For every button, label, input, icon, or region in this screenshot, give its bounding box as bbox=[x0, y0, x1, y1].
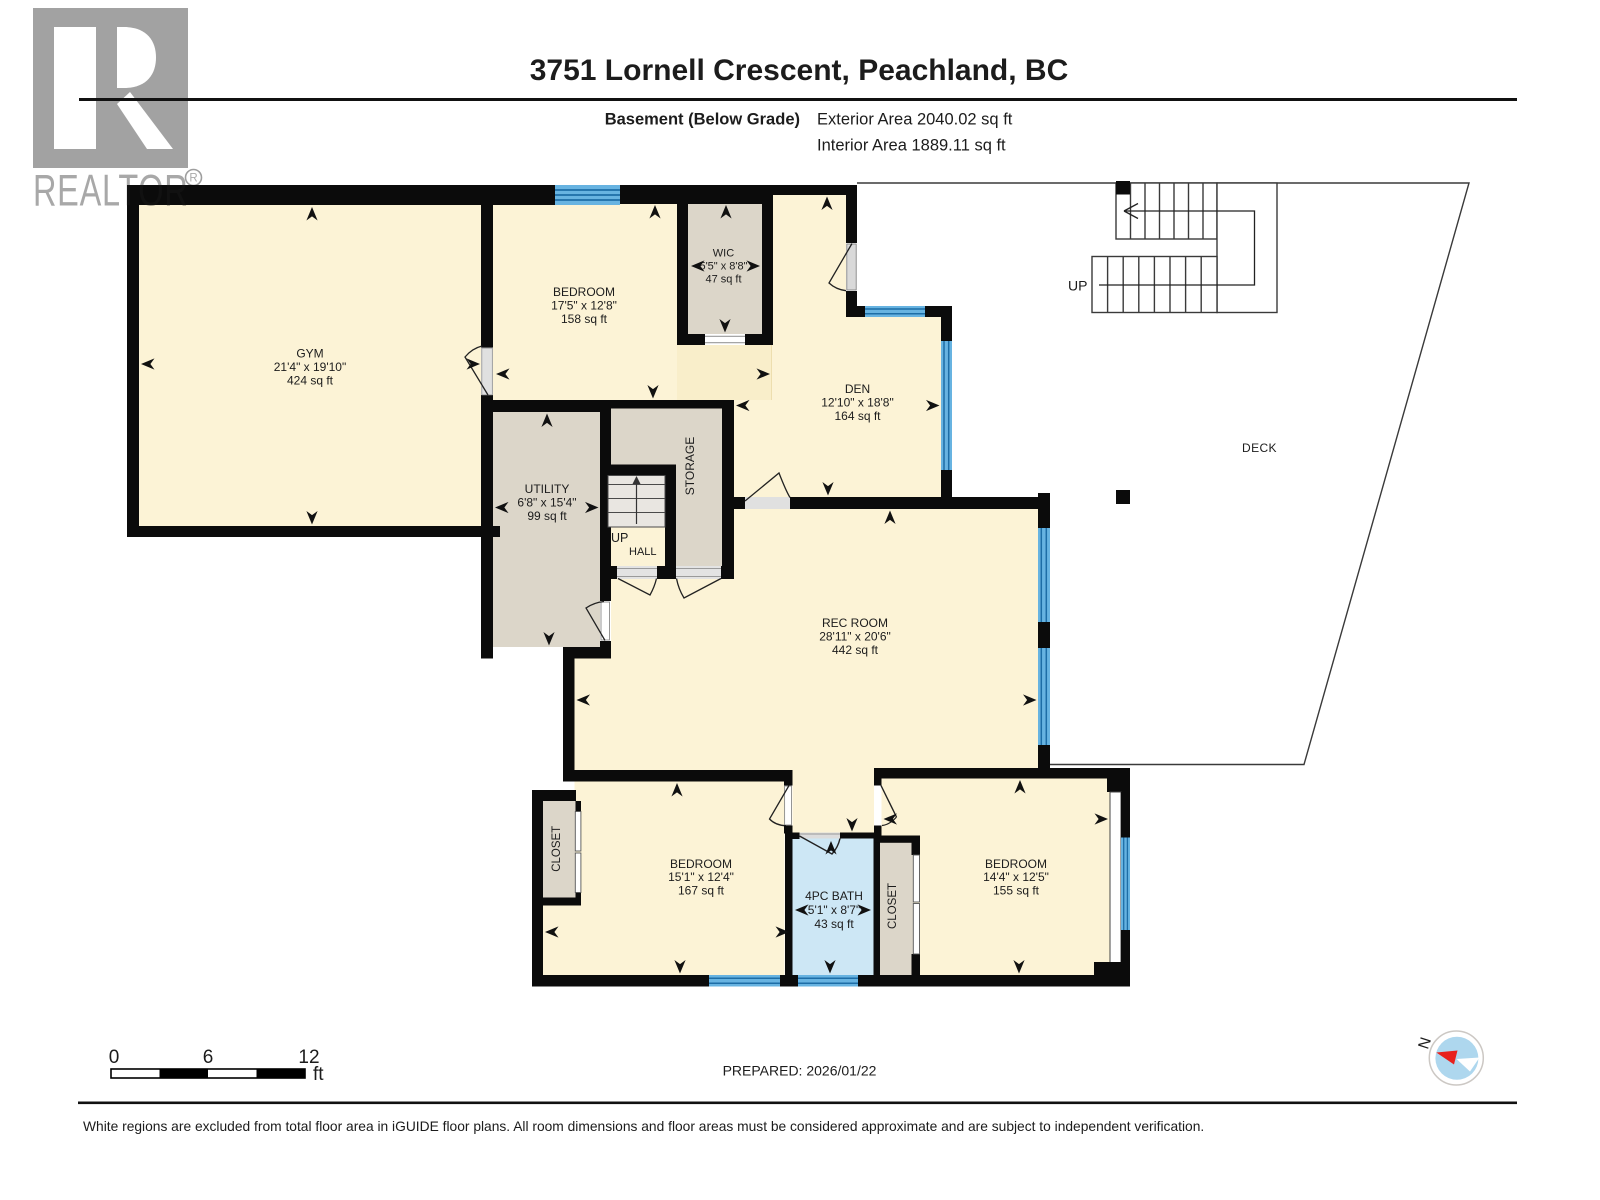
svg-text:CLOSET: CLOSET bbox=[551, 826, 563, 872]
svg-text:28'11" x 20'6": 28'11" x 20'6" bbox=[819, 629, 891, 643]
svg-text:99 sq ft: 99 sq ft bbox=[527, 509, 567, 523]
svg-text:43 sq ft: 43 sq ft bbox=[814, 917, 854, 931]
svg-text:15'1" x 12'4": 15'1" x 12'4" bbox=[668, 870, 734, 884]
svg-text:5'5" x 8'8": 5'5" x 8'8" bbox=[699, 261, 747, 273]
svg-text:REC ROOM: REC ROOM bbox=[822, 616, 888, 630]
svg-text:R: R bbox=[189, 173, 197, 185]
svg-text:17'5" x 12'8": 17'5" x 12'8" bbox=[551, 298, 617, 312]
svg-text:424 sq ft: 424 sq ft bbox=[287, 373, 334, 387]
svg-text:CLOSET: CLOSET bbox=[887, 883, 899, 929]
svg-text:HALL: HALL bbox=[629, 546, 657, 558]
svg-text:5'1" x 8'7": 5'1" x 8'7" bbox=[808, 903, 860, 917]
svg-text:UP: UP bbox=[1068, 278, 1087, 294]
svg-text:12'10" x 18'8": 12'10" x 18'8" bbox=[821, 395, 894, 409]
svg-text:Exterior Area 2040.02 sq ft: Exterior Area 2040.02 sq ft bbox=[817, 111, 1013, 129]
svg-text:0: 0 bbox=[109, 1047, 120, 1068]
svg-text:UP: UP bbox=[611, 531, 628, 545]
svg-text:158 sq ft: 158 sq ft bbox=[561, 312, 608, 326]
svg-text:442 sq ft: 442 sq ft bbox=[832, 643, 879, 657]
svg-text:ft: ft bbox=[313, 1064, 324, 1085]
svg-text:UTILITY: UTILITY bbox=[525, 482, 570, 496]
svg-text:164 sq ft: 164 sq ft bbox=[834, 409, 881, 423]
svg-text:14'4" x 12'5": 14'4" x 12'5" bbox=[983, 870, 1049, 884]
svg-text:WIC: WIC bbox=[713, 248, 734, 260]
svg-text:167 sq ft: 167 sq ft bbox=[678, 883, 725, 897]
svg-text:BEDROOM: BEDROOM bbox=[553, 285, 615, 299]
svg-text:21'4" x 19'10": 21'4" x 19'10" bbox=[274, 360, 347, 374]
svg-text:DEN: DEN bbox=[845, 382, 870, 396]
svg-text:3751 Lornell Crescent, Peachla: 3751 Lornell Crescent, Peachland, BC bbox=[530, 54, 1069, 87]
svg-text:Basement (Below Grade): Basement (Below Grade) bbox=[605, 111, 800, 129]
svg-text:REALTOR: REALTOR bbox=[33, 167, 188, 216]
svg-text:4PC BATH: 4PC BATH bbox=[805, 889, 863, 903]
svg-text:White regions are excluded fro: White regions are excluded from total fl… bbox=[83, 1119, 1204, 1134]
svg-text:6: 6 bbox=[203, 1047, 214, 1068]
svg-text:PREPARED: 2026/01/22: PREPARED: 2026/01/22 bbox=[723, 1063, 877, 1079]
svg-text:155 sq ft: 155 sq ft bbox=[993, 883, 1040, 897]
svg-text:Interior Area 1889.11 sq ft: Interior Area 1889.11 sq ft bbox=[817, 137, 1006, 155]
svg-text:6'8" x 15'4": 6'8" x 15'4" bbox=[517, 495, 576, 509]
svg-text:DECK: DECK bbox=[1242, 441, 1277, 455]
svg-text:STORAGE: STORAGE bbox=[683, 437, 697, 495]
svg-text:47 sq ft: 47 sq ft bbox=[705, 274, 741, 286]
svg-text:BEDROOM: BEDROOM bbox=[985, 857, 1047, 871]
svg-text:GYM: GYM bbox=[296, 347, 323, 361]
svg-text:BEDROOM: BEDROOM bbox=[670, 857, 732, 871]
